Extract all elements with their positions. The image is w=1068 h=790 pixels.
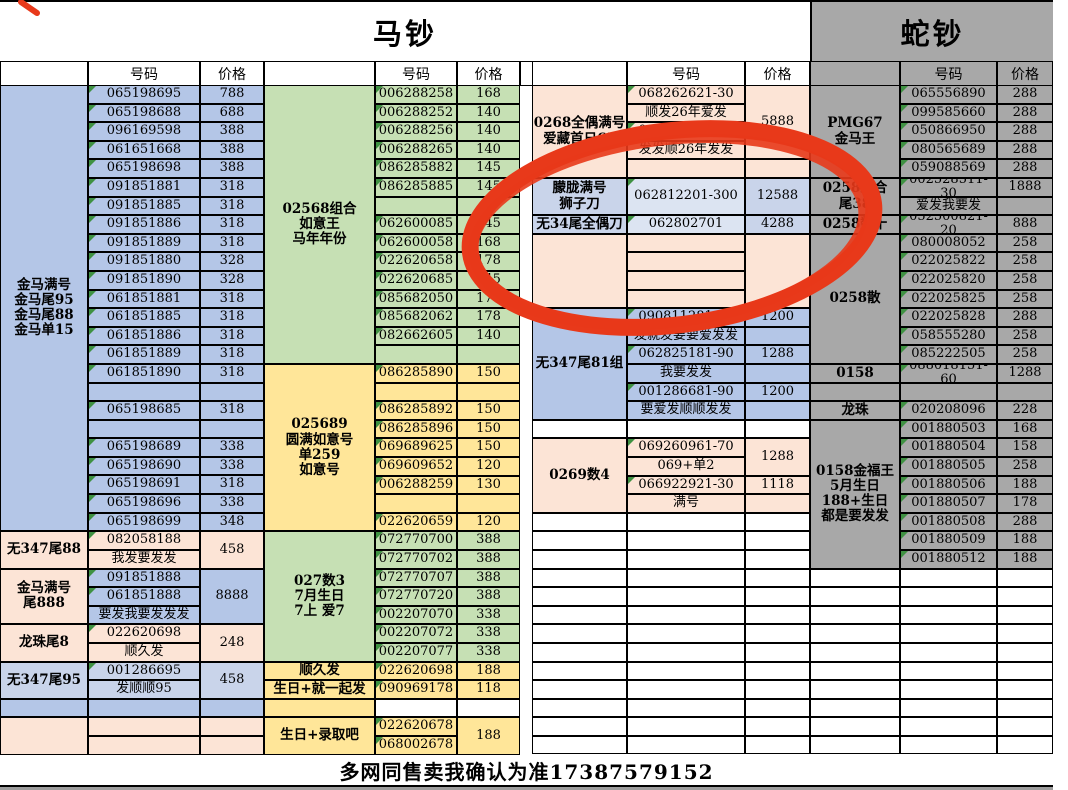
number-cell[interactable]: 086285882	[375, 159, 457, 178]
number-cell[interactable]: 065198696	[88, 494, 200, 513]
price-cell[interactable]	[457, 383, 520, 402]
header-price-col1[interactable]: 价格	[200, 61, 264, 86]
price-cell[interactable]	[997, 717, 1053, 736]
price-cell[interactable]: 318	[200, 178, 264, 197]
price-cell[interactable]: 318	[200, 345, 264, 364]
number-cell[interactable]	[627, 662, 745, 681]
number-cell[interactable]: 062600058	[375, 234, 457, 253]
price-cell[interactable]: 140	[457, 141, 520, 160]
header-blank-right[interactable]	[810, 61, 900, 86]
header-number-col2[interactable]: 号码	[375, 61, 457, 86]
number-cell[interactable]: 062802701	[627, 215, 745, 234]
price-cell[interactable]: 140	[457, 104, 520, 123]
number-cell[interactable]: 091851885	[88, 197, 200, 216]
price-cell[interactable]: 120	[457, 457, 520, 476]
number-cell[interactable]: 爱发我要发	[900, 197, 997, 216]
number-cell[interactable]	[627, 624, 745, 643]
number-cell[interactable]: 发顺顺95	[88, 680, 200, 699]
number-cell[interactable]: 050866950	[900, 122, 997, 141]
number-cell[interactable]	[627, 717, 745, 736]
number-cell[interactable]: 022025820	[900, 271, 997, 290]
price-cell[interactable]: 888	[997, 215, 1053, 234]
number-cell[interactable]: 068262721-30	[627, 122, 745, 141]
number-cell[interactable]: 006288258	[375, 85, 457, 104]
price-cell[interactable]: 168	[997, 420, 1053, 439]
row-label-cell[interactable]: 025689 圆满如意号 单259 如意号	[264, 364, 375, 531]
number-cell[interactable]	[627, 736, 745, 755]
price-cell[interactable]	[200, 736, 264, 755]
number-cell[interactable]: 022620678	[375, 717, 457, 736]
number-cell[interactable]	[900, 680, 997, 699]
row-label-cell[interactable]: 0158	[810, 364, 900, 383]
price-cell[interactable]	[745, 234, 810, 308]
number-cell[interactable]	[627, 699, 745, 718]
number-cell[interactable]: 062825181-90	[627, 345, 745, 364]
number-cell[interactable]	[88, 699, 200, 718]
price-cell[interactable]: 338	[200, 494, 264, 513]
price-cell[interactable]: 150	[457, 364, 520, 383]
row-label-cell[interactable]	[532, 680, 627, 699]
number-cell[interactable]: 062812201-300	[627, 178, 745, 215]
price-cell[interactable]: 4288	[745, 215, 810, 234]
price-cell[interactable]: 258	[997, 345, 1053, 364]
number-cell[interactable]: 080565689	[900, 141, 997, 160]
number-cell[interactable]	[627, 252, 745, 271]
number-cell[interactable]: 顺久发	[88, 643, 200, 662]
row-label-cell[interactable]	[810, 587, 900, 606]
price-cell[interactable]: 388	[457, 531, 520, 550]
number-cell[interactable]: 091851880	[88, 252, 200, 271]
number-cell[interactable]	[900, 717, 997, 736]
price-cell[interactable]	[745, 736, 810, 755]
price-cell[interactable]	[745, 513, 810, 532]
number-cell[interactable]: 022620658	[375, 252, 457, 271]
number-cell[interactable]	[88, 717, 200, 736]
number-cell[interactable]	[900, 383, 997, 402]
price-cell[interactable]: 150	[457, 401, 520, 420]
number-cell[interactable]	[375, 494, 457, 513]
number-cell[interactable]: 001880505	[900, 457, 997, 476]
number-cell[interactable]: 006288259	[375, 476, 457, 495]
number-cell[interactable]: 090811281-90	[627, 308, 745, 327]
price-cell[interactable]	[997, 569, 1053, 588]
price-cell[interactable]: 288	[997, 141, 1053, 160]
header-number-col3[interactable]: 号码	[627, 61, 745, 86]
row-label-cell[interactable]	[810, 606, 900, 625]
row-label-cell[interactable]	[810, 624, 900, 643]
number-cell[interactable]: 022025825	[900, 290, 997, 309]
price-cell[interactable]: 318	[200, 215, 264, 234]
number-cell[interactable]	[375, 383, 457, 402]
price-cell[interactable]	[745, 699, 810, 718]
row-label-cell[interactable]	[810, 569, 900, 588]
price-cell[interactable]: 248	[200, 624, 264, 661]
price-cell[interactable]: 188	[457, 717, 520, 754]
price-cell[interactable]: 258	[997, 327, 1053, 346]
header-blank-midleft[interactable]	[264, 61, 375, 86]
price-cell[interactable]: 338	[457, 606, 520, 625]
number-cell[interactable]: 085222505	[900, 345, 997, 364]
price-cell[interactable]	[745, 606, 810, 625]
number-cell[interactable]: 001286681-90	[627, 383, 745, 402]
header-blank-middle[interactable]	[532, 61, 627, 86]
price-cell[interactable]	[457, 699, 520, 718]
price-cell[interactable]	[745, 550, 810, 569]
row-label-cell[interactable]	[264, 699, 375, 718]
price-cell[interactable]	[745, 569, 810, 588]
number-cell[interactable]	[627, 680, 745, 699]
price-cell[interactable]	[200, 383, 264, 402]
number-cell[interactable]: 061851888	[88, 587, 200, 606]
number-cell[interactable]	[627, 643, 745, 662]
row-label-cell[interactable]	[532, 717, 627, 736]
price-cell[interactable]	[997, 643, 1053, 662]
price-cell[interactable]	[997, 587, 1053, 606]
number-cell[interactable]: 061851886	[88, 327, 200, 346]
row-label-cell[interactable]	[532, 624, 627, 643]
number-cell[interactable]	[900, 699, 997, 718]
row-label-cell[interactable]	[810, 383, 900, 402]
price-cell[interactable]	[745, 662, 810, 681]
price-cell[interactable]: 388	[200, 141, 264, 160]
number-cell[interactable]: 022620659	[375, 513, 457, 532]
number-cell[interactable]: 080008052	[900, 234, 997, 253]
price-cell[interactable]	[745, 494, 810, 513]
number-cell[interactable]: 满号	[627, 494, 745, 513]
number-cell[interactable]: 061851889	[88, 345, 200, 364]
number-cell[interactable]: 066922921-30	[627, 476, 745, 495]
number-cell[interactable]: 022620698	[375, 662, 457, 681]
number-cell[interactable]: 086285896	[375, 420, 457, 439]
price-cell[interactable]: 318	[200, 290, 264, 309]
row-label-cell[interactable]	[810, 736, 900, 755]
price-cell[interactable]	[997, 383, 1053, 402]
price-cell[interactable]: 318	[200, 197, 264, 216]
number-cell[interactable]: 001880508	[900, 513, 997, 532]
price-cell[interactable]: 318	[200, 327, 264, 346]
price-cell[interactable]	[745, 401, 810, 420]
number-cell[interactable]	[900, 587, 997, 606]
price-cell[interactable]	[745, 680, 810, 699]
price-cell[interactable]: 188	[997, 531, 1053, 550]
number-cell[interactable]: 069+单2	[627, 457, 745, 476]
price-cell[interactable]: 1288	[745, 345, 810, 364]
number-cell[interactable]	[375, 699, 457, 718]
row-label-cell[interactable]: 0268全偶满号 爱藏首日65	[532, 85, 627, 178]
row-label-cell[interactable]	[810, 662, 900, 681]
row-label-cell[interactable]: 0269数4	[532, 438, 627, 512]
number-cell[interactable]	[627, 587, 745, 606]
row-label-cell[interactable]: 顺久发	[264, 662, 375, 681]
row-label-cell[interactable]	[810, 699, 900, 718]
row-label-cell[interactable]: PMG67 金马王	[810, 85, 900, 178]
price-cell[interactable]	[745, 717, 810, 736]
price-cell[interactable]: 12588	[745, 178, 810, 215]
number-cell[interactable]: 发发顺26年发发	[627, 141, 745, 160]
number-cell[interactable]	[627, 569, 745, 588]
number-cell[interactable]: 065198691	[88, 475, 200, 494]
row-label-cell[interactable]: 金马满号 尾888	[0, 569, 88, 625]
number-cell[interactable]: 052500821-20	[900, 215, 997, 234]
price-cell[interactable]	[457, 345, 520, 364]
price-cell[interactable]: 288	[997, 513, 1053, 532]
row-label-cell[interactable]: 生日+就一起发	[264, 680, 375, 699]
row-label-cell[interactable]	[532, 569, 627, 588]
number-cell[interactable]: 001880504	[900, 438, 997, 457]
number-cell[interactable]: 002207072	[375, 624, 457, 643]
row-label-cell[interactable]: 龙珠	[810, 401, 900, 420]
number-cell[interactable]	[627, 420, 745, 439]
price-cell[interactable]	[997, 699, 1053, 718]
price-cell[interactable]: 258	[997, 271, 1053, 290]
price-cell[interactable]: 150	[457, 420, 520, 439]
number-cell[interactable]: 001880507	[900, 494, 997, 513]
price-cell[interactable]: 318	[200, 364, 264, 383]
price-cell[interactable]: 288	[997, 85, 1053, 104]
price-cell[interactable]	[745, 643, 810, 662]
number-cell[interactable]: 001286695	[88, 662, 200, 681]
price-cell[interactable]: 1288	[997, 364, 1053, 383]
number-cell[interactable]: 099585660	[900, 104, 997, 123]
price-cell[interactable]	[745, 531, 810, 550]
price-cell[interactable]	[457, 494, 520, 513]
price-cell[interactable]: 318	[200, 401, 264, 420]
number-cell[interactable]	[627, 550, 745, 569]
number-cell[interactable]: 065198689	[88, 438, 200, 457]
number-cell[interactable]	[375, 345, 457, 364]
row-label-cell[interactable]: 0258组合 尾38	[810, 178, 900, 215]
number-cell[interactable]: 059088569	[900, 159, 997, 178]
header-price-col4[interactable]: 价格	[997, 61, 1053, 86]
price-cell[interactable]: 318	[200, 308, 264, 327]
price-cell[interactable]: 458	[200, 531, 264, 568]
header-price-col3[interactable]: 价格	[745, 61, 810, 86]
price-cell[interactable]: 1888	[997, 178, 1053, 197]
price-cell[interactable]	[997, 680, 1053, 699]
price-cell[interactable]: 168	[457, 85, 520, 104]
number-cell[interactable]	[900, 606, 997, 625]
header-number-col4[interactable]: 号码	[900, 61, 997, 86]
number-cell[interactable]: 002207070	[375, 606, 457, 625]
number-cell[interactable]: 061651668	[88, 141, 200, 160]
number-cell[interactable]	[627, 271, 745, 290]
price-cell[interactable]: 318	[200, 475, 264, 494]
number-cell[interactable]: 090969178	[375, 680, 457, 699]
number-cell[interactable]: 086285885	[375, 178, 457, 197]
price-cell[interactable]: 150	[457, 438, 520, 457]
price-cell[interactable]: 140	[457, 122, 520, 141]
number-cell[interactable]: 082662605	[375, 327, 457, 346]
row-label-cell[interactable]: 无34尾全偶刀	[532, 215, 627, 234]
price-cell[interactable]: 188	[457, 662, 520, 681]
number-cell[interactable]: 022025828	[900, 308, 997, 327]
row-label-cell[interactable]	[810, 717, 900, 736]
number-cell[interactable]	[88, 383, 200, 402]
number-cell[interactable]: 068002678	[375, 736, 457, 755]
number-cell[interactable]: 022620685	[375, 271, 457, 290]
price-cell[interactable]: 338	[457, 643, 520, 662]
number-cell[interactable]: 069609652	[375, 457, 457, 476]
number-cell[interactable]	[627, 531, 745, 550]
number-cell[interactable]	[900, 736, 997, 755]
row-label-cell[interactable]: 无347尾95	[0, 662, 88, 699]
number-cell[interactable]: 020208096	[900, 401, 997, 420]
price-cell[interactable]	[200, 420, 264, 439]
header-blank-left[interactable]	[0, 61, 88, 86]
number-cell[interactable]	[627, 234, 745, 253]
price-cell[interactable]: 178	[457, 290, 520, 309]
row-label-cell[interactable]: 027数3 7月生日 7上 爱7	[264, 531, 375, 661]
price-cell[interactable]: 288	[997, 308, 1053, 327]
number-cell[interactable]: 085682062	[375, 308, 457, 327]
price-cell[interactable]: 338	[457, 624, 520, 643]
number-cell[interactable]: 072770707	[375, 569, 457, 588]
number-cell[interactable]	[900, 569, 997, 588]
price-cell[interactable]: 688	[200, 104, 264, 123]
price-cell[interactable]: 318	[200, 234, 264, 253]
number-cell[interactable]: 091851886	[88, 215, 200, 234]
number-cell[interactable]: 091851889	[88, 234, 200, 253]
number-cell[interactable]: 001880503	[900, 420, 997, 439]
price-cell[interactable]: 178	[457, 252, 520, 271]
price-cell[interactable]	[200, 699, 264, 718]
row-label-cell[interactable]	[532, 699, 627, 718]
price-cell[interactable]: 8888	[200, 569, 264, 625]
number-cell[interactable]: 065198695	[88, 85, 200, 104]
price-cell[interactable]: 258	[997, 457, 1053, 476]
price-cell[interactable]: 1200	[745, 308, 810, 327]
price-cell[interactable]: 178	[457, 308, 520, 327]
row-label-cell[interactable]	[532, 420, 627, 439]
number-cell[interactable]: 006288256	[375, 122, 457, 141]
price-cell[interactable]: 388	[457, 587, 520, 606]
price-cell[interactable]: 348	[200, 513, 264, 532]
number-cell[interactable]: 061851881	[88, 290, 200, 309]
number-cell[interactable]	[627, 290, 745, 309]
price-cell[interactable]: 388	[200, 122, 264, 141]
number-cell[interactable]: 091851881	[88, 178, 200, 197]
price-cell[interactable]: 258	[997, 252, 1053, 271]
price-cell[interactable]: 130	[457, 476, 520, 495]
number-cell[interactable]: 要发我要发发发	[88, 606, 200, 625]
price-cell[interactable]	[745, 420, 810, 439]
price-cell[interactable]: 328	[200, 252, 264, 271]
price-cell[interactable]	[997, 736, 1053, 755]
row-label-cell[interactable]: 无347尾81组	[532, 308, 627, 420]
row-label-cell[interactable]: 龙珠尾8	[0, 624, 88, 661]
number-cell[interactable]: 086285890	[375, 364, 457, 383]
number-cell[interactable]: 058555280	[900, 327, 997, 346]
number-cell[interactable]: 022025822	[900, 252, 997, 271]
price-cell[interactable]	[200, 717, 264, 736]
row-label-cell[interactable]	[532, 587, 627, 606]
number-cell[interactable]	[900, 643, 997, 662]
number-cell[interactable]: 088018151-60	[900, 364, 997, 383]
number-cell[interactable]: 发就发要要爱发发	[627, 327, 745, 346]
price-cell[interactable]	[997, 606, 1053, 625]
number-cell[interactable]: 072770720	[375, 587, 457, 606]
row-label-cell[interactable]	[532, 736, 627, 755]
price-cell[interactable]: 140	[457, 327, 520, 346]
header-number-col1[interactable]: 号码	[88, 61, 200, 86]
number-cell[interactable]	[88, 736, 200, 755]
number-cell[interactable]: 我要发发	[627, 364, 745, 383]
price-cell[interactable]	[997, 197, 1053, 216]
price-cell[interactable]: 188	[997, 550, 1053, 569]
number-cell[interactable]: 091851888	[88, 569, 200, 588]
row-label-cell[interactable]	[532, 606, 627, 625]
price-cell[interactable]: 1288	[745, 438, 810, 475]
row-label-cell[interactable]: 0158金福王 5月生日 188+生日 都是要发发	[810, 420, 900, 569]
price-cell[interactable]: 338	[200, 457, 264, 476]
number-cell[interactable]: 091851890	[88, 271, 200, 290]
price-cell[interactable]: 120	[457, 513, 520, 532]
price-cell[interactable]: 178	[997, 494, 1053, 513]
number-cell[interactable]: 要爱发顺顺发发	[627, 401, 745, 420]
number-cell[interactable]: 061851885	[88, 308, 200, 327]
number-cell[interactable]: 086285892	[375, 401, 457, 420]
row-label-cell[interactable]: 02568组合 如意王 马年年份	[264, 85, 375, 364]
price-cell[interactable]	[457, 197, 520, 216]
number-cell[interactable]: 顺发26年爱发	[627, 104, 745, 123]
row-label-cell[interactable]: 金马满号 金马尾95 金马尾88 金马单15	[0, 85, 88, 531]
price-cell[interactable]: 1200	[745, 383, 810, 402]
price-cell[interactable]: 288	[997, 122, 1053, 141]
price-cell[interactable]: 338	[200, 438, 264, 457]
price-cell[interactable]: 788	[200, 85, 264, 104]
price-cell[interactable]: 328	[200, 271, 264, 290]
price-cell[interactable]	[745, 327, 810, 346]
number-cell[interactable]	[900, 624, 997, 643]
row-label-cell[interactable]	[0, 699, 88, 718]
row-label-cell[interactable]	[810, 643, 900, 662]
price-cell[interactable]	[997, 662, 1053, 681]
row-label-cell[interactable]	[0, 717, 88, 754]
price-cell[interactable]: 145	[457, 215, 520, 234]
row-label-cell[interactable]: 生日+录取吧	[264, 717, 375, 754]
number-cell[interactable]: 069260961-70	[627, 438, 745, 457]
price-cell[interactable]: 388	[200, 159, 264, 178]
price-cell[interactable]: 158	[997, 438, 1053, 457]
price-cell[interactable]	[745, 159, 810, 178]
row-label-cell[interactable]	[532, 643, 627, 662]
number-cell[interactable]: 002528511-30	[900, 178, 997, 197]
price-cell[interactable]: 258	[997, 234, 1053, 253]
number-cell[interactable]: 022620698	[88, 624, 200, 643]
price-cell[interactable]	[745, 624, 810, 643]
number-cell[interactable]: 065198685	[88, 401, 200, 420]
row-label-cell[interactable]: 0258散	[810, 234, 900, 364]
row-label-cell[interactable]: 朦胧满号 狮子刀	[532, 178, 627, 215]
number-cell[interactable]	[900, 662, 997, 681]
price-cell[interactable]: 458	[200, 662, 264, 699]
number-cell[interactable]	[627, 159, 745, 178]
number-cell[interactable]: 085682050	[375, 290, 457, 309]
price-cell[interactable]: 145	[457, 159, 520, 178]
number-cell[interactable]: 065198698	[88, 159, 200, 178]
number-cell[interactable]: 我发要发发	[88, 550, 200, 569]
price-cell[interactable]: 228	[997, 401, 1053, 420]
number-cell[interactable]	[88, 420, 200, 439]
row-label-cell[interactable]	[532, 234, 627, 308]
number-cell[interactable]: 065198699	[88, 513, 200, 532]
number-cell[interactable]	[627, 606, 745, 625]
price-cell[interactable]: 288	[997, 159, 1053, 178]
row-label-cell[interactable]	[532, 531, 627, 550]
number-cell[interactable]: 065198688	[88, 104, 200, 123]
row-label-cell[interactable]	[532, 662, 627, 681]
price-cell[interactable]: 145	[457, 271, 520, 290]
